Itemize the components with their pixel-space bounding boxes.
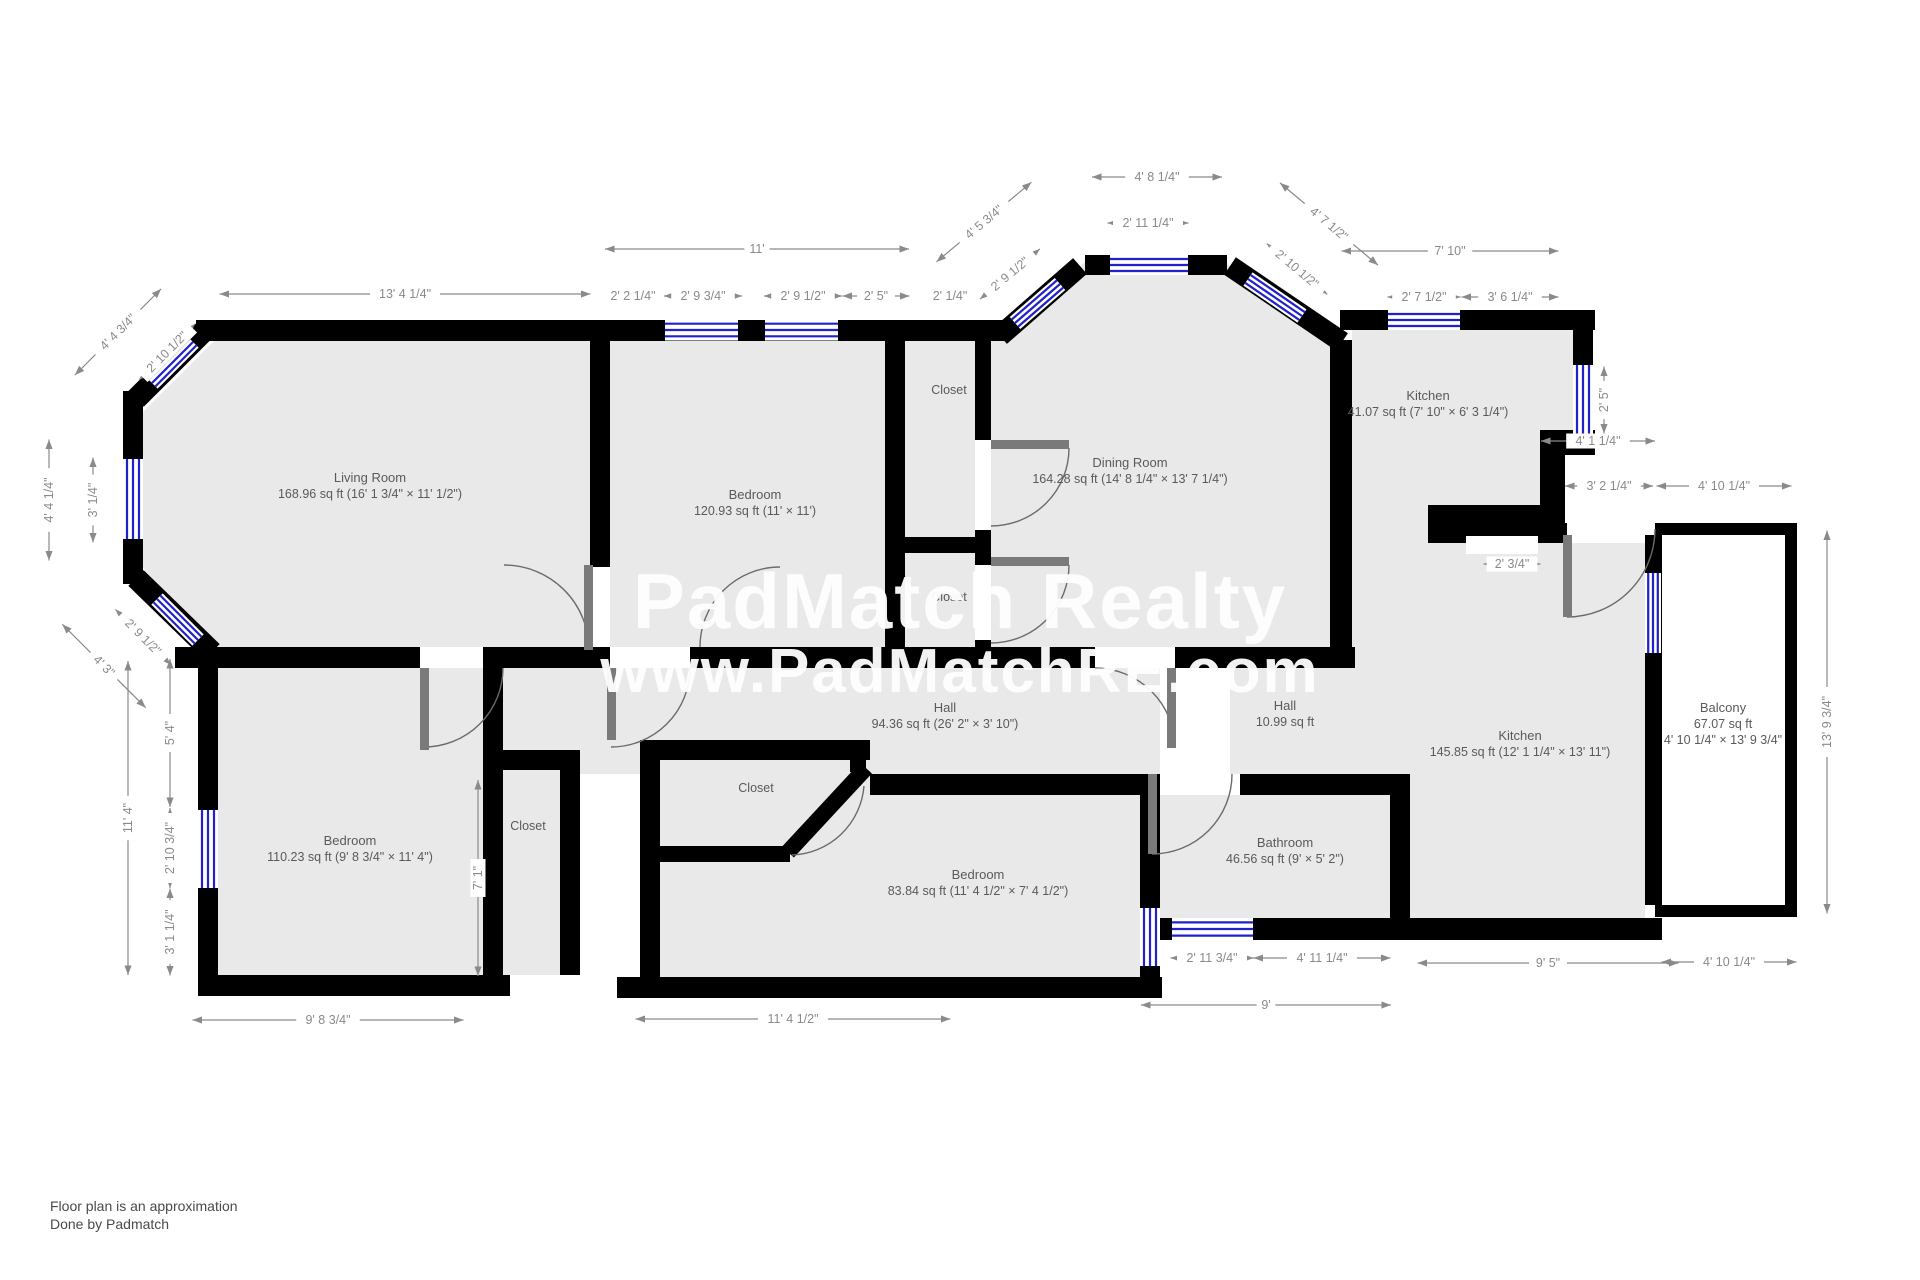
dimension: 2' 11 1/4" <box>1108 216 1189 231</box>
footer-line-1: Floor plan is an approximation <box>50 1198 238 1214</box>
wall-segment <box>198 975 510 996</box>
room-area: 168.96 sq ft (16' 1 3/4" × 11' 1/2") <box>278 487 462 501</box>
wall-segment <box>975 341 991 440</box>
room-area: 94.36 sq ft (26' 2" × 3' 10") <box>872 717 1019 731</box>
dimension-label: 4' 10 1/4" <box>1698 479 1750 493</box>
dimension-label: 2' 7 1/2" <box>1401 290 1446 304</box>
dimension: 11' 4" <box>121 661 136 975</box>
dimension: 4' 8 1/4" <box>1092 170 1222 185</box>
wall-segment <box>1340 310 1595 330</box>
dimension-label: 11' 4" <box>121 803 135 833</box>
dimension-label: 2' 5" <box>864 289 888 303</box>
wall-segment <box>617 977 1162 998</box>
dimension-label: 13' 9 3/4" <box>1820 696 1834 748</box>
dimension: 4' 10 1/4" <box>1662 955 1797 970</box>
wall-segment <box>196 320 1010 341</box>
dimension-label: 3' 2 1/4" <box>1586 479 1631 493</box>
dimension: 3' 1/4" <box>86 458 101 543</box>
dimension-label: 7' 1" <box>471 866 485 890</box>
room-name: Bedroom <box>729 487 782 502</box>
dimension-label: 2' 11 3/4" <box>1186 951 1237 965</box>
dimension: 4' 10 1/4" <box>1657 479 1792 494</box>
dimension: 4' 11 1/4" <box>1254 951 1391 966</box>
dimension-label: 4' 10 1/4" <box>1703 955 1755 969</box>
wall-segment <box>590 341 610 567</box>
room-dimensions: 4' 10 1/4" × 13' 9 3/4" <box>1664 733 1782 747</box>
dimension-label: 4' 4 3/4" <box>97 311 139 353</box>
dimension-label: 11' 4 1/2" <box>767 1012 818 1026</box>
room-area: 67.07 sq ft <box>1694 717 1753 731</box>
dimension-label: 2' 9 1/2" <box>122 616 164 658</box>
dimension: 4' 5 3/4" <box>932 176 1037 267</box>
closet-label: Closet <box>738 781 774 795</box>
room-area: 46.56 sq ft (9' × 5' 2") <box>1226 852 1344 866</box>
wall-segment <box>1785 523 1797 917</box>
dimension-label: 9' 5" <box>1536 956 1560 970</box>
dimension-label: 2' 9 1/2" <box>780 289 825 303</box>
closet-label: Closet <box>510 819 546 833</box>
watermark: PadMatch Realty www.PadMatchRE.com <box>599 557 1319 706</box>
dimension-label: 5' 4" <box>163 721 177 745</box>
wall-segment <box>640 740 870 760</box>
dimension-label: 2' 1/4" <box>933 289 968 303</box>
wall-segment <box>198 888 218 975</box>
dimension-label: 4' 4 1/4" <box>42 477 56 522</box>
dimension-label: 7' 10" <box>1434 244 1465 258</box>
dimension: 7' 10" <box>1342 244 1559 259</box>
wall-segment <box>640 846 790 862</box>
dimension: 2' 1/4" <box>925 289 976 304</box>
dimension-label: 2' 10 1/2" <box>1273 247 1322 291</box>
wall-segment <box>1160 918 1172 940</box>
room-floor <box>660 774 1140 977</box>
room-floor <box>218 668 483 975</box>
dimension-label: 2' 3/4" <box>1495 557 1530 571</box>
window <box>1648 573 1658 653</box>
dimension: 2' 9 3/4" <box>664 289 742 304</box>
floor-plan-page: 13' 4 1/4"11'2' 2 1/4"2' 9 3/4"2' 9 1/2"… <box>0 0 1920 1280</box>
dimension-label: 4' 11 1/4" <box>1296 951 1347 965</box>
dimension-label: 2' 5" <box>1597 388 1611 412</box>
wall-segment <box>1240 774 1410 795</box>
dimension: 3' 6 1/4" <box>1462 290 1559 305</box>
dimension-label: 2' 2 1/4" <box>610 289 655 303</box>
room-name: Kitchen <box>1498 728 1541 743</box>
closet-label: Closet <box>931 383 967 397</box>
room-area: 145.85 sq ft (12' 1 1/4" × 13' 11") <box>1430 745 1611 759</box>
watermark-title: PadMatch Realty <box>633 557 1287 645</box>
dimension-label: 2' 10 3/4" <box>163 822 177 874</box>
window <box>1577 365 1589 435</box>
wall-segment <box>1540 430 1565 510</box>
wall-segment <box>1655 523 1797 535</box>
wall-segment <box>1390 774 1410 918</box>
dimension: 13' 9 3/4" <box>1820 531 1835 914</box>
window <box>1144 908 1156 966</box>
dimension-label: 13' 4 1/4" <box>379 287 431 301</box>
dimension: 3' 2 1/4" <box>1565 479 1653 494</box>
dimension-label: 3' 1 1/4" <box>163 909 177 954</box>
dimension: 2' 2 1/4" <box>601 289 665 304</box>
dimension-label: 4' 5 3/4" <box>962 202 1006 242</box>
room-floor <box>503 750 560 975</box>
wall-segment <box>1410 918 1662 940</box>
room-name: Bedroom <box>324 833 377 848</box>
dimension: 2' 3/4" <box>1484 557 1541 572</box>
wall-segment <box>1330 340 1352 647</box>
wall-segment <box>1428 505 1448 543</box>
dimension: 13' 4 1/4" <box>220 287 591 302</box>
dimension: 9' 8 3/4" <box>193 1013 464 1028</box>
room-name: Bathroom <box>1257 835 1313 850</box>
footer-disclaimer: Floor plan is an approximation Done by P… <box>50 1198 238 1232</box>
dimension-label: 2' 9 1/2" <box>988 254 1032 294</box>
room-area: 83.84 sq ft (11' 4 1/2" × 7' 4 1/2") <box>888 884 1069 898</box>
door-leaf <box>584 565 593 650</box>
dimension: 2' 10 3/4" <box>163 808 178 888</box>
dimension: 2' 5" <box>1597 367 1612 434</box>
room-area: 120.93 sq ft (11' × 11') <box>694 504 816 518</box>
room-area: 110.23 sq ft (9' 8 3/4" × 11' 4") <box>267 850 433 864</box>
room-label: Balcony67.07 sq ft4' 10 1/4" × 13' 9 3/4… <box>1664 700 1782 747</box>
dimension-label: 9' <box>1261 998 1270 1012</box>
wall-segment <box>198 647 218 810</box>
dimension: 5' 4" <box>163 659 178 807</box>
room-area: 10.99 sq ft <box>1256 715 1315 729</box>
wall-segment <box>1253 918 1410 940</box>
dimension-label: 4' 1 1/4" <box>1575 434 1620 448</box>
wall-segment <box>1655 905 1797 917</box>
door-leaf <box>1563 535 1572 617</box>
dimension-label: 9' 8 3/4" <box>305 1013 350 1027</box>
dimension-label: 11' <box>749 242 764 256</box>
wall-segment <box>483 647 503 975</box>
room-name: Dining Room <box>1092 455 1167 470</box>
window <box>665 324 738 337</box>
door-leaf <box>1148 774 1157 854</box>
dimension: 3' 1 1/4" <box>163 889 178 976</box>
window <box>765 324 838 337</box>
dimension-label: 2' 11 1/4" <box>1122 216 1173 230</box>
room-area: 164.28 sq ft (14' 8 1/4" × 13' 7 1/4") <box>1032 472 1227 486</box>
dimension: 11' 4 1/2" <box>636 1012 951 1027</box>
dimension: 2' 9 1/2" <box>764 289 842 304</box>
dimension: 2' 5" <box>843 289 910 304</box>
watermark-url: www.PadMatchRE.com <box>599 637 1319 706</box>
dimension: 2' 11 3/4" <box>1171 951 1254 966</box>
dimension-label: 4' 7 1/2" <box>1307 204 1351 244</box>
room-name: Kitchen <box>1406 388 1449 403</box>
dimension-label: 4' 8 1/4" <box>1134 170 1179 184</box>
footer-line-2: Done by Padmatch <box>50 1216 169 1232</box>
dimension-label: 2' 9 3/4" <box>680 289 725 303</box>
room-name: Balcony <box>1700 700 1747 715</box>
wall-segment <box>1448 505 1565 533</box>
wall-segment <box>870 774 1160 795</box>
wall-segment <box>503 647 610 668</box>
wall-segment <box>640 760 660 977</box>
dimension: 11' <box>605 242 909 257</box>
door-leaf <box>991 440 1069 449</box>
floor-plan-canvas: 13' 4 1/4"11'2' 2 1/4"2' 9 3/4"2' 9 1/2"… <box>0 0 1920 1280</box>
dimension: 9' <box>1141 998 1391 1013</box>
room-name: Bedroom <box>952 867 1005 882</box>
room-area: 41.07 sq ft (7' 10" × 6' 3 1/4") <box>1348 405 1509 419</box>
wall-notch <box>1466 536 1538 554</box>
dimension: 4' 4 1/4" <box>42 440 57 561</box>
room-name: Living Room <box>334 470 406 485</box>
dimension-label: 3' 6 1/4" <box>1487 290 1532 304</box>
window <box>1110 259 1188 271</box>
dimension: 2' 7 1/2" <box>1388 290 1461 305</box>
window <box>1172 922 1253 935</box>
door-leaf <box>420 668 429 750</box>
dimension: 9' 5" <box>1418 956 1679 971</box>
window <box>202 810 214 888</box>
dimension-label: 3' 1/4" <box>86 483 100 518</box>
window <box>1388 314 1460 326</box>
window <box>127 459 139 539</box>
wall-segment <box>560 750 580 975</box>
